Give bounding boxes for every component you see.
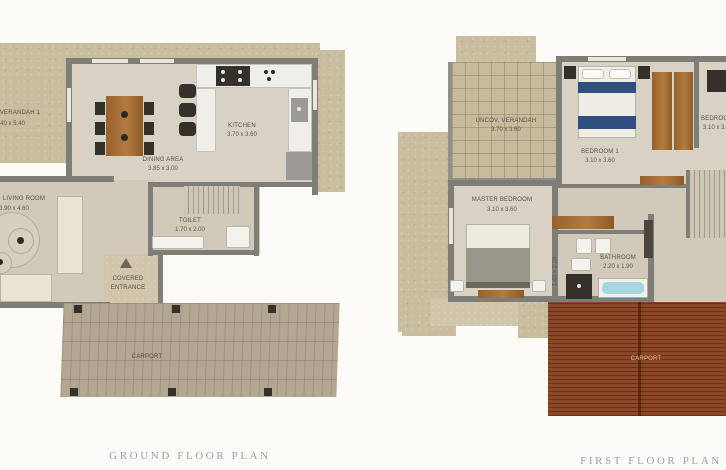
wall [448, 180, 558, 186]
entrance-arrow-icon [120, 258, 132, 268]
staircase [184, 186, 240, 214]
carport-post [74, 305, 82, 313]
pillow [582, 69, 604, 79]
bed-blue-stripe [578, 82, 636, 93]
room-dims-verandah1: 1.40 x 5.40 [0, 121, 50, 128]
carport-paving [60, 303, 339, 397]
bed-blue-stripe [578, 116, 636, 129]
room-label-entrance-1: COVERED [96, 276, 160, 283]
verandah1-surface [0, 43, 68, 163]
sofa [57, 196, 83, 274]
floor-plans-canvas: VERANDAH 1 1.40 x 5.40 DINING AREA 3.85 … [0, 0, 726, 470]
dining-chair [144, 122, 154, 135]
room-dims-bedroom2: 3.10 x 3.60 [703, 125, 726, 132]
window [67, 88, 71, 122]
room-label-living: LIVING ROOM [0, 196, 70, 203]
wall [556, 56, 562, 188]
room-dims-bathroom: 2.20 x 1.90 [584, 264, 652, 271]
wall [448, 62, 452, 182]
nightstand [638, 66, 650, 79]
wall [556, 56, 726, 62]
first-floor-caption: FIRST FLOOR PLAN [576, 455, 726, 467]
fridge [286, 152, 312, 180]
shower [566, 274, 592, 299]
wall [0, 176, 114, 182]
dining-chair [144, 102, 154, 115]
kitchen-counter-left [196, 88, 216, 152]
dining-chair [95, 142, 105, 155]
wardrobe [652, 72, 672, 150]
dining-chair [95, 122, 105, 135]
window [140, 59, 174, 63]
roof-edge-tan [518, 300, 550, 338]
hob [262, 69, 278, 83]
room-label-verandah: UNCOV. VERANDAH [468, 118, 544, 125]
ground-floor-caption: GROUND FLOOR PLAN [84, 450, 296, 462]
top-tan-strip [456, 36, 536, 64]
bar-stool [179, 84, 196, 98]
room-label-toilet: TOILET [162, 218, 218, 225]
room-dims-master: 3.10 x 3.60 [458, 207, 546, 214]
carport-post [70, 388, 78, 396]
wall [556, 230, 652, 234]
toilet-vanity [152, 236, 204, 249]
bed [578, 66, 636, 138]
stair-rail [640, 176, 684, 185]
kitchen-sink [291, 98, 308, 122]
staircase [690, 170, 726, 238]
room-label-entrance-2: ENTRANCE [96, 285, 160, 292]
armchair [8, 228, 34, 254]
wc [226, 226, 250, 248]
kitchen-counter-top [196, 64, 312, 88]
window [588, 57, 626, 61]
room-dims-dining: 3.85 x 3.00 [128, 166, 198, 173]
bed-blanket [466, 248, 530, 282]
window [313, 80, 317, 110]
hall-dims-vertical: 1.40 x 2.20 [553, 250, 560, 294]
nightstand [532, 280, 546, 292]
nightstand [450, 280, 464, 292]
wardrobe [674, 72, 693, 150]
carport-post [268, 305, 276, 313]
laundry-unit [576, 238, 592, 254]
pillow [609, 69, 631, 79]
dining-table [106, 96, 143, 156]
bed-bench [478, 290, 524, 298]
room-label-dining: DINING AREA [128, 157, 198, 164]
room-label-verandah1: VERANDAH 1 [0, 110, 66, 117]
wall [148, 250, 259, 255]
hall-cabinet [552, 216, 614, 229]
carport-post [168, 388, 176, 396]
room-dims-verandah: 3.70 x 3.60 [468, 127, 544, 134]
stove [216, 66, 250, 86]
wall [694, 56, 699, 148]
room-label-bathroom: BATHROOM [584, 255, 652, 262]
bar-stool [179, 122, 196, 136]
room-label-carport-roof: CARPORT [608, 356, 684, 363]
bar-stool [179, 103, 196, 117]
duct [644, 220, 653, 258]
bathtub [598, 278, 648, 298]
bathtub-water [602, 282, 644, 294]
wall [254, 182, 259, 256]
nightstand [564, 66, 576, 79]
wall [312, 58, 318, 195]
sofa [0, 274, 52, 302]
room-dims-living: 3.90 x 4.60 [0, 206, 56, 213]
room-label-master: MASTER BEDROOM [458, 197, 546, 204]
bed-headboard [466, 282, 530, 288]
wardrobe-partial [707, 70, 726, 92]
room-label-carport: CARPORT [112, 354, 182, 361]
carport-post [264, 388, 272, 396]
bed [466, 224, 530, 288]
room-dims-toilet: 1.70 x 2.00 [162, 227, 218, 234]
room-label-bedroom1: BEDROOM 1 [566, 149, 634, 156]
room-label-kitchen: KITCHEN [210, 123, 274, 130]
laundry-unit [595, 238, 611, 254]
room-dims-bedroom1: 3.10 x 3.60 [566, 158, 634, 165]
window [92, 59, 128, 63]
room-dims-kitchen: 3.70 x 3.60 [210, 132, 274, 139]
dining-chair [95, 102, 105, 115]
dining-chair [144, 142, 154, 155]
room-label-bedroom2: BEDROOM 2 [701, 116, 726, 123]
window [449, 208, 453, 244]
carport-post [172, 305, 180, 313]
